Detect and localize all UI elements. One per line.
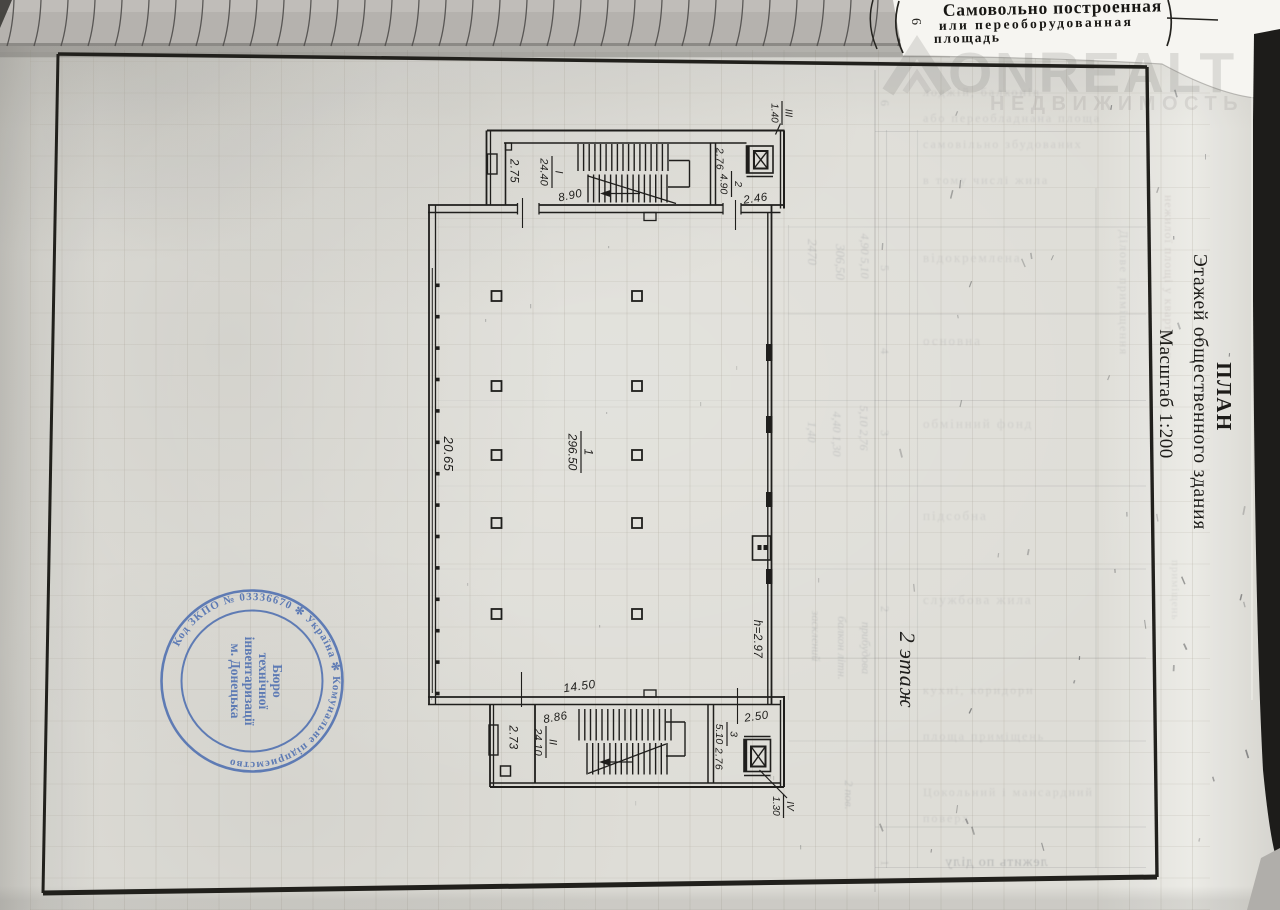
svg-text:поверх: поверх	[923, 811, 970, 825]
svg-text:службова жила: службова жила	[923, 592, 1033, 607]
svg-text:5.10: 5.10	[713, 724, 725, 745]
svg-text:балкон літн.: балкон літн.	[835, 616, 849, 680]
svg-text:2: 2	[732, 180, 744, 187]
svg-text:прибудова: прибудова	[859, 622, 873, 674]
svg-text:ПЛАН: ПЛАН	[1212, 362, 1236, 431]
svg-text:2.50: 2.50	[743, 709, 770, 724]
svg-text:5,10 2,76: 5,10 2,76	[857, 406, 871, 451]
svg-text:2470: 2470	[805, 239, 820, 266]
svg-text:6: 6	[908, 18, 923, 25]
svg-text:відокремлена: відокремлена	[923, 250, 1022, 265]
svg-text:або переобладнана площа: або переобладнана площа	[923, 111, 1101, 125]
svg-text:2.76: 2.76	[713, 747, 725, 770]
svg-text:8.86: 8.86	[542, 710, 568, 726]
svg-text:1: 1	[878, 860, 892, 866]
svg-text:1.30: 1.30	[770, 796, 781, 816]
svg-text:4.90: 4.90	[718, 174, 730, 195]
svg-text:площа приміщень: площа приміщень	[923, 729, 1045, 743]
svg-text:5: 5	[878, 265, 892, 271]
svg-text:296.50: 296.50	[566, 433, 580, 471]
svg-text:4,90 5,10: 4,90 5,10	[858, 234, 872, 279]
svg-text:Цокольний і мансардний: Цокольний і мансардний	[923, 785, 1094, 799]
svg-text:4: 4	[878, 348, 892, 354]
svg-text:технічної: технічної	[256, 653, 271, 710]
svg-text:Этажей общественного здания: Этажей общественного здания	[1189, 254, 1210, 530]
svg-text:м. Донецька: м. Донецька	[228, 644, 243, 719]
svg-text:306,50: 306,50	[833, 243, 848, 280]
svg-text:підсобна: підсобна	[923, 508, 988, 523]
svg-text:площадь: площадь	[934, 30, 1001, 46]
svg-text:Ділове приміщення: Ділове приміщення	[1117, 230, 1131, 356]
svg-text:III: III	[783, 109, 794, 118]
svg-text:Бюро: Бюро	[270, 664, 285, 698]
svg-text:6: 6	[878, 100, 892, 106]
svg-text:обмінний фонд: обмінний фонд	[923, 416, 1033, 431]
svg-text:1,40: 1,40	[805, 422, 819, 443]
svg-text:2: 2	[878, 606, 892, 612]
svg-text:24.10: 24.10	[532, 727, 544, 756]
svg-text:лоджій, балконів: лоджій, балконів	[923, 85, 1041, 99]
svg-text:приміщень: приміщень	[1169, 560, 1181, 621]
svg-text:2 пов.: 2 пов.	[842, 780, 856, 809]
svg-text:4,40 1,30: 4,40 1,30	[830, 412, 844, 457]
svg-text:2.73: 2.73	[507, 724, 519, 749]
svg-text:8.90: 8.90	[557, 188, 583, 205]
svg-text:2 этаж: 2 этаж	[895, 632, 920, 709]
svg-text:1: 1	[582, 449, 596, 456]
svg-text:24.40: 24.40	[538, 157, 550, 186]
svg-text:засклений: засклений	[809, 610, 823, 662]
svg-text:II: II	[547, 739, 559, 745]
svg-text:2.75: 2.75	[508, 158, 520, 183]
svg-text:в тому числі жила: в тому числі жила	[923, 173, 1049, 187]
svg-text:3: 3	[878, 430, 892, 436]
svg-text:1.40: 1.40	[769, 103, 780, 123]
svg-text:IV: IV	[784, 801, 795, 812]
svg-text:інвентаризації: інвентаризації	[242, 637, 257, 726]
svg-text:Масштаб 1:200: Масштаб 1:200	[1155, 329, 1176, 459]
svg-text:14.50: 14.50	[562, 677, 596, 695]
svg-text:самовільно збудованих: самовільно збудованих	[923, 137, 1083, 151]
svg-text:3: 3	[728, 731, 740, 737]
svg-text:20.65: 20.65	[441, 435, 456, 471]
svg-text:лежить по ділу: лежить по ділу	[944, 855, 1047, 870]
svg-text:I: I	[553, 170, 565, 173]
svg-text:основна: основна	[923, 333, 982, 348]
svg-text:кухні, коридори: кухні, коридори	[923, 683, 1035, 697]
svg-text:2.76: 2.76	[714, 147, 726, 170]
svg-text:h=2.97: h=2.97	[751, 620, 763, 659]
